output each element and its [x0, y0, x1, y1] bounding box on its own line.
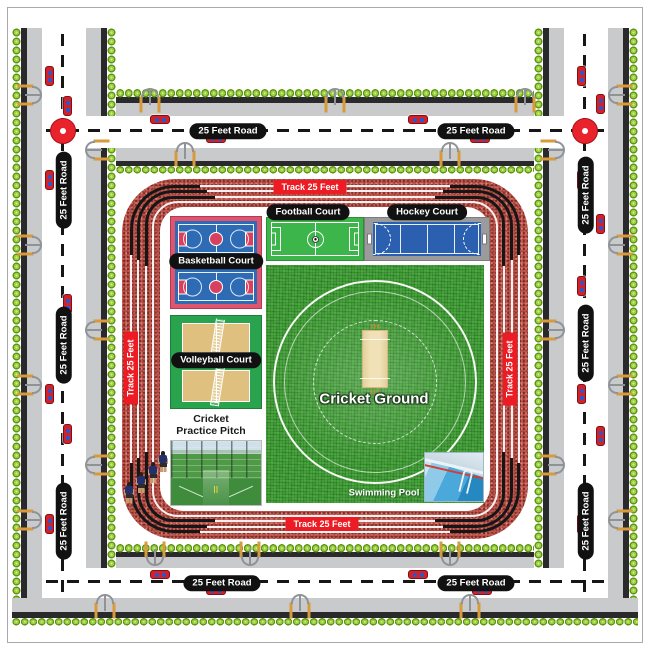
car	[45, 66, 54, 86]
soccer-ball-icon	[312, 236, 319, 243]
street-lamp	[94, 594, 116, 612]
street-lamp	[289, 594, 311, 612]
site-plan: Cricket Practice Pitch Cricket Ground Sw…	[0, 0, 650, 650]
street-lamp	[324, 88, 346, 106]
street-lamp	[24, 374, 42, 396]
road-label-left-3: 25 Feet Road	[56, 482, 72, 559]
street-lamp	[24, 509, 42, 531]
cricket-ground-label: Cricket Ground	[319, 391, 428, 408]
runner	[148, 462, 158, 483]
car	[577, 66, 586, 86]
street-lamp	[439, 142, 461, 160]
street-lamp	[608, 234, 626, 256]
volleyball-net	[209, 366, 224, 407]
street-lamp	[608, 509, 626, 531]
car	[577, 384, 586, 404]
road-label-right-3: 25 Feet Road	[578, 482, 594, 559]
road-label-left-2: 25 Feet Road	[56, 306, 72, 383]
street-lamp	[24, 84, 42, 106]
car	[596, 94, 605, 114]
street-lamp	[608, 374, 626, 396]
street-lamp	[144, 548, 166, 566]
hockey-court-label: Hockey Court	[387, 204, 467, 220]
car	[577, 276, 586, 296]
roundabout-right	[572, 118, 598, 144]
football-court-label: Football Court	[267, 204, 350, 220]
football-court	[266, 217, 364, 261]
road-label-left-1: 25 Feet Road	[56, 151, 72, 228]
track-label-left: Track 25 Feet	[124, 331, 138, 404]
street-lamp	[24, 234, 42, 256]
street-lamp	[459, 594, 481, 612]
cricket-practice-photo	[170, 440, 262, 506]
street-lamp	[439, 548, 461, 566]
track-label-top: Track 25 Feet	[273, 180, 346, 194]
car	[45, 170, 54, 190]
volleyball-court	[182, 370, 250, 402]
road-label-right-2: 25 Feet Road	[578, 304, 594, 381]
car	[150, 570, 170, 579]
road-label-right-1: 25 Feet Road	[578, 156, 594, 233]
street-lamp	[239, 548, 261, 566]
volleyball-court	[182, 323, 250, 353]
hockey-goal	[482, 234, 487, 245]
bottom-road-centerline	[46, 580, 604, 583]
roundabout-left	[50, 118, 76, 144]
car	[596, 426, 605, 446]
street-lamp	[547, 139, 565, 161]
car	[45, 514, 54, 534]
street-lamp	[85, 139, 103, 161]
top-road-centerline	[46, 129, 604, 132]
cricket-practice-label-line1: Cricket	[193, 413, 229, 425]
swimming-pool-photo	[424, 452, 484, 502]
runner	[158, 451, 168, 472]
car	[408, 570, 428, 579]
street-lamp	[547, 454, 565, 476]
road-label-top-2: 25 Feet Road	[437, 123, 514, 139]
road-label-bottom-2: 25 Feet Road	[437, 575, 514, 591]
hockey-court	[364, 217, 490, 261]
volleyball-court-label: Volleyball Court	[171, 352, 261, 368]
street-lamp	[139, 88, 161, 106]
street-lamp	[85, 454, 103, 476]
road-label-top-1: 25 Feet Road	[189, 123, 266, 139]
bottom-road-inner-verge	[116, 544, 534, 568]
car	[45, 384, 54, 404]
street-lamp	[547, 319, 565, 341]
basketball-court	[170, 264, 262, 309]
runner	[124, 482, 134, 503]
road-label-bottom-1: 25 Feet Road	[183, 575, 260, 591]
runner	[136, 472, 146, 493]
car	[150, 115, 170, 124]
track-label-bottom: Track 25 Feet	[285, 517, 358, 531]
street-lamp	[174, 142, 196, 160]
cricket-pitch	[362, 330, 388, 388]
stumps	[371, 324, 379, 329]
street-lamp	[85, 319, 103, 341]
junction-bottom-right	[532, 568, 566, 598]
hockey-goal	[367, 234, 372, 245]
street-lamp	[608, 84, 626, 106]
track-label-right: Track 25 Feet	[503, 332, 517, 405]
swimming-pool-label: Swimming Pool	[349, 488, 420, 499]
cricket-practice-label-line2: Practice Pitch	[176, 425, 245, 437]
car	[408, 115, 428, 124]
car	[63, 424, 72, 444]
street-lamp	[514, 88, 536, 106]
car	[63, 96, 72, 116]
car	[596, 214, 605, 234]
practice-stumps	[214, 486, 219, 493]
basketball-court-label: Basketball Court	[169, 253, 263, 269]
